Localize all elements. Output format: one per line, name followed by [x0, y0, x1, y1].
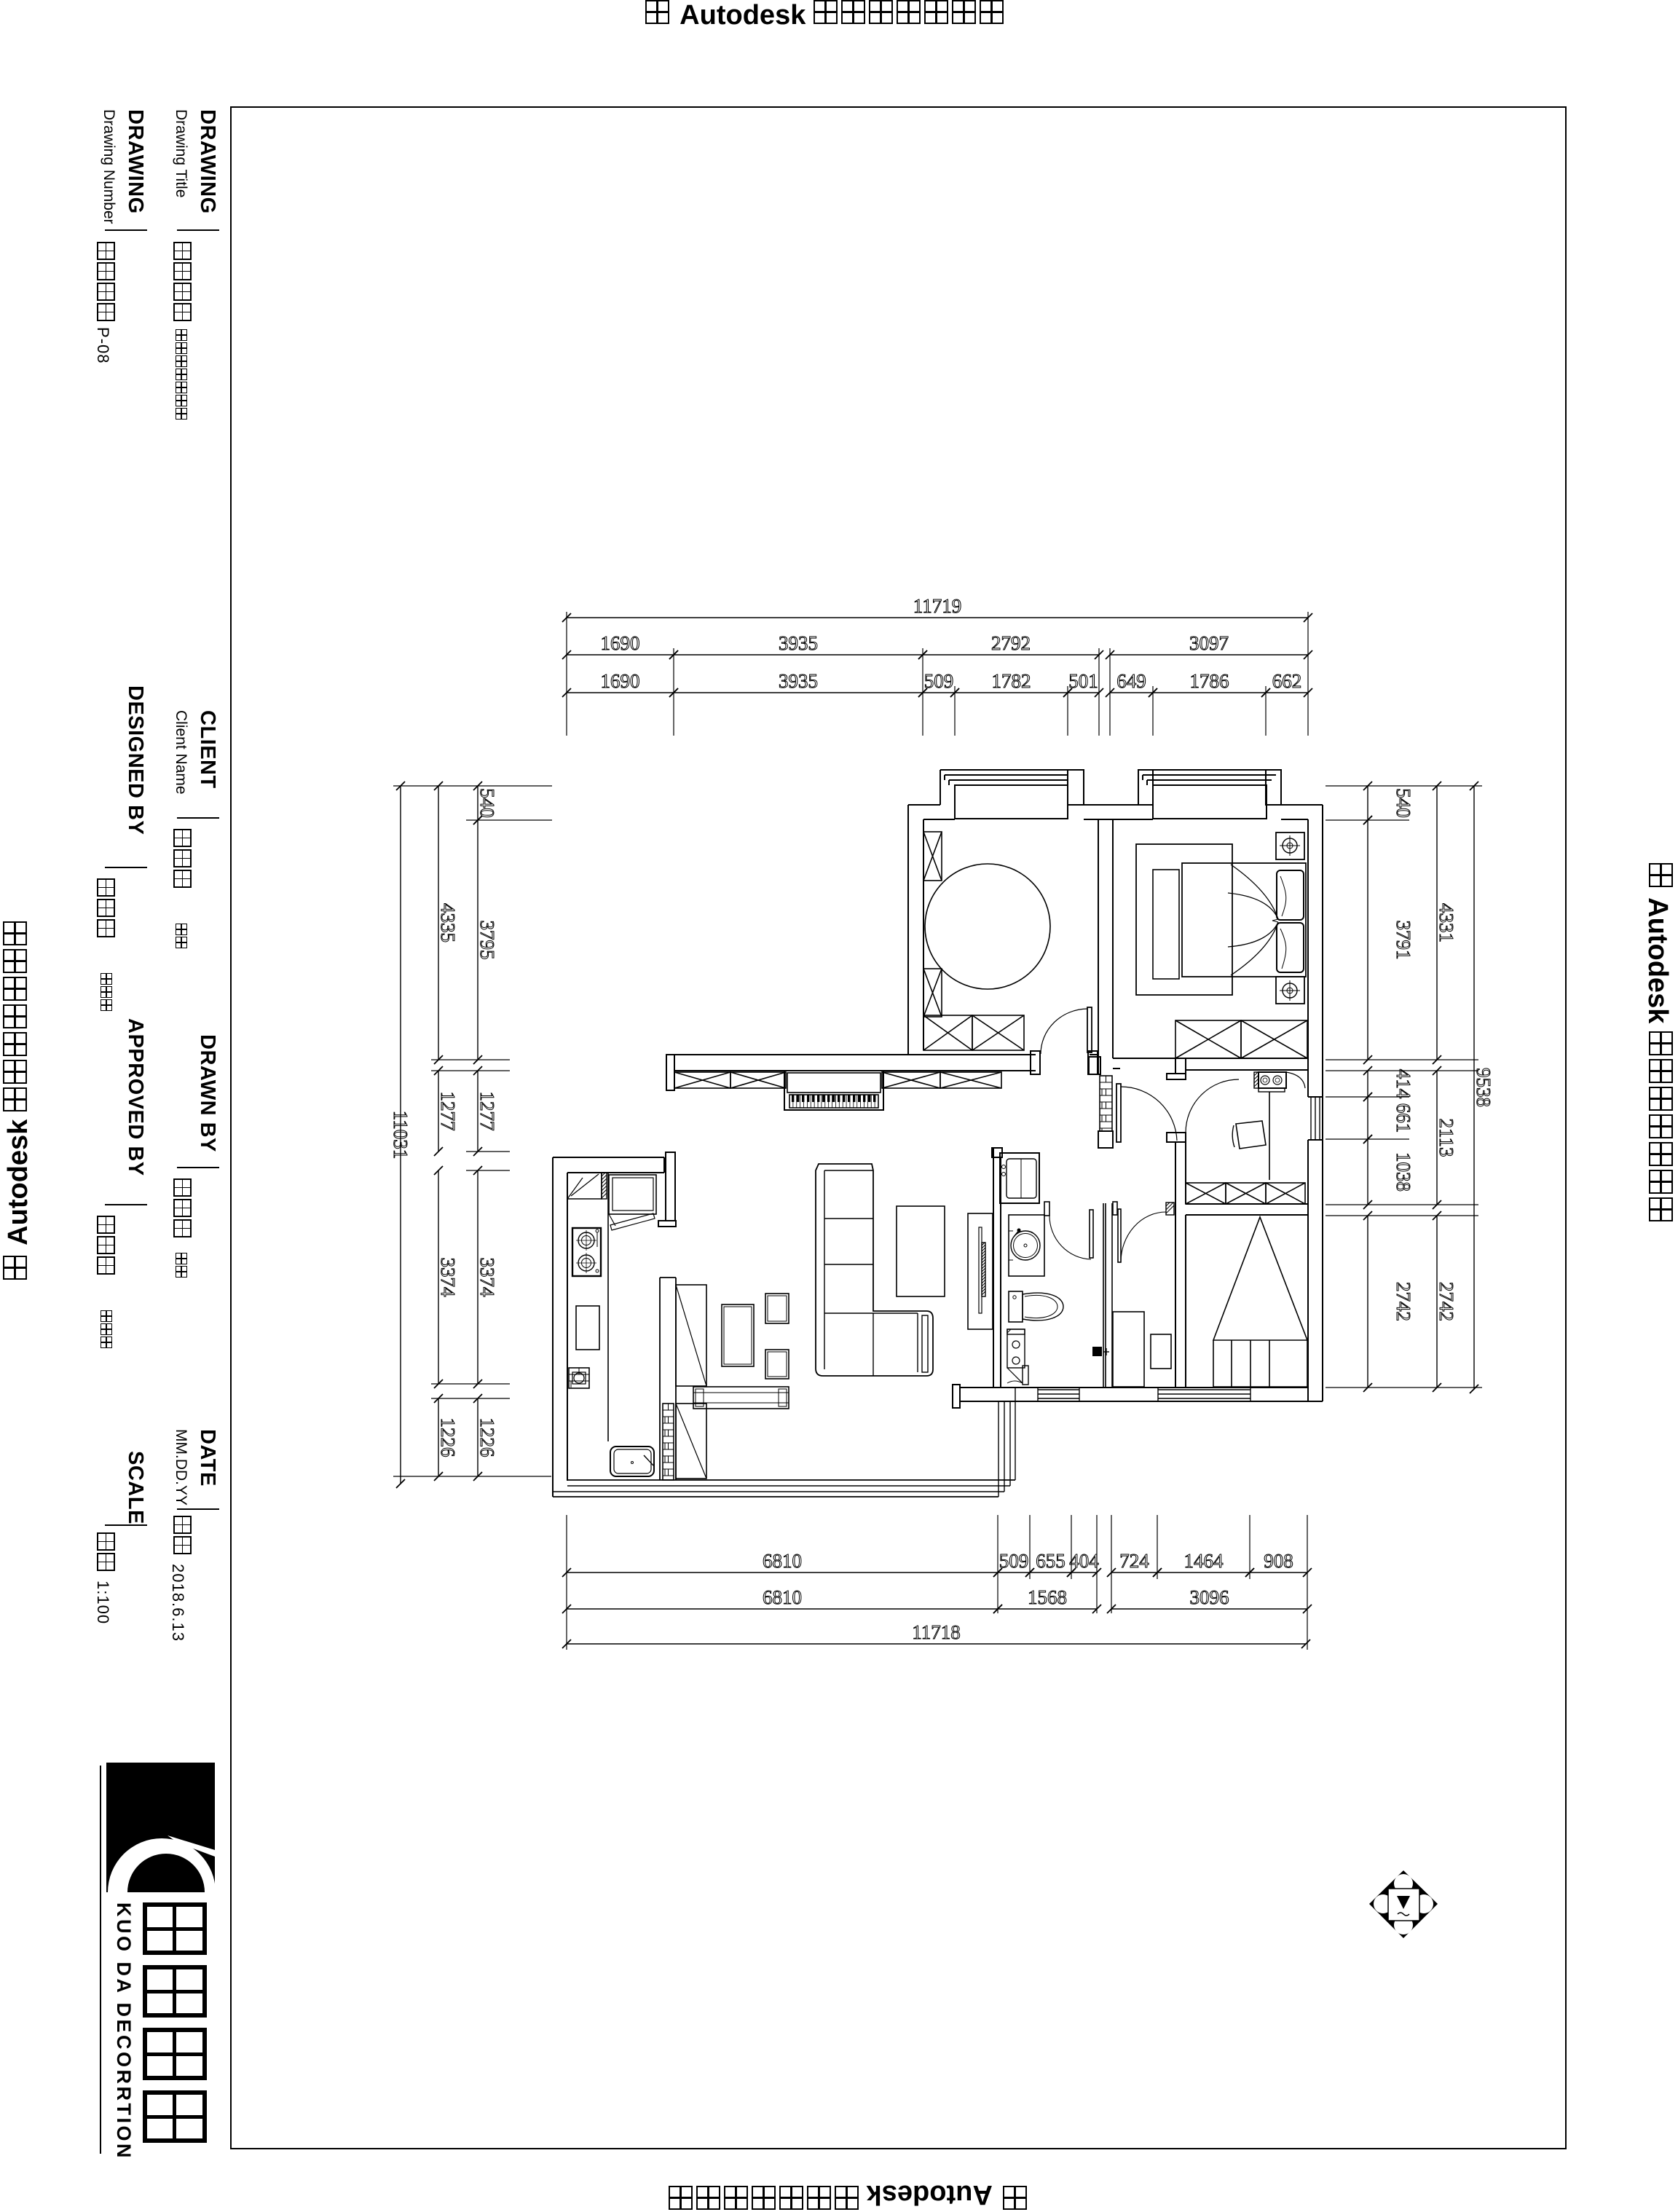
svg-text:4331: 4331 [1435, 903, 1457, 942]
svg-text:3096: 3096 [1190, 1586, 1229, 1608]
svg-text:11031: 11031 [390, 1111, 411, 1160]
svg-text:509: 509 [924, 670, 954, 692]
svg-text:1226: 1226 [437, 1418, 459, 1457]
svg-text:1226: 1226 [476, 1418, 498, 1457]
svg-text:1690: 1690 [601, 632, 640, 654]
svg-text:724: 724 [1119, 1550, 1149, 1572]
svg-text:3935: 3935 [779, 632, 818, 654]
svg-text:3374: 3374 [437, 1258, 459, 1298]
svg-text:655: 655 [1036, 1550, 1066, 1572]
svg-text:649: 649 [1116, 670, 1146, 692]
svg-text:6810: 6810 [763, 1550, 802, 1572]
svg-text:661: 661 [1393, 1103, 1414, 1133]
svg-text:1786: 1786 [1190, 670, 1229, 692]
svg-text:3374: 3374 [476, 1258, 498, 1298]
svg-text:3097: 3097 [1189, 632, 1229, 654]
svg-text:1568: 1568 [1028, 1586, 1067, 1608]
svg-text:1464: 1464 [1184, 1550, 1224, 1572]
svg-text:1038: 1038 [1393, 1152, 1414, 1192]
svg-text:2742: 2742 [1393, 1282, 1414, 1321]
svg-text:540: 540 [1393, 788, 1414, 818]
svg-text:3791: 3791 [1393, 921, 1414, 960]
svg-text:9538: 9538 [1473, 1068, 1494, 1107]
svg-text:1277: 1277 [437, 1092, 459, 1131]
svg-text:501: 501 [1068, 670, 1098, 692]
svg-text:2113: 2113 [1435, 1119, 1457, 1157]
svg-text:1782: 1782 [992, 670, 1031, 692]
svg-text:6810: 6810 [763, 1586, 802, 1608]
svg-text:1277: 1277 [476, 1092, 498, 1131]
svg-text:2742: 2742 [1435, 1282, 1457, 1321]
svg-text:11719: 11719 [913, 595, 962, 617]
svg-text:662: 662 [1272, 670, 1302, 692]
svg-text:3795: 3795 [476, 921, 498, 960]
svg-text:2792: 2792 [991, 632, 1031, 654]
svg-text:404: 404 [1069, 1550, 1099, 1572]
svg-text:3935: 3935 [779, 670, 818, 692]
svg-text:908: 908 [1264, 1550, 1293, 1572]
svg-text:509: 509 [999, 1550, 1029, 1572]
svg-text:4335: 4335 [437, 903, 459, 942]
svg-text:1690: 1690 [601, 670, 640, 692]
svg-text:414: 414 [1393, 1069, 1414, 1099]
svg-text:11718: 11718 [912, 1621, 961, 1643]
svg-text:540: 540 [476, 788, 498, 818]
